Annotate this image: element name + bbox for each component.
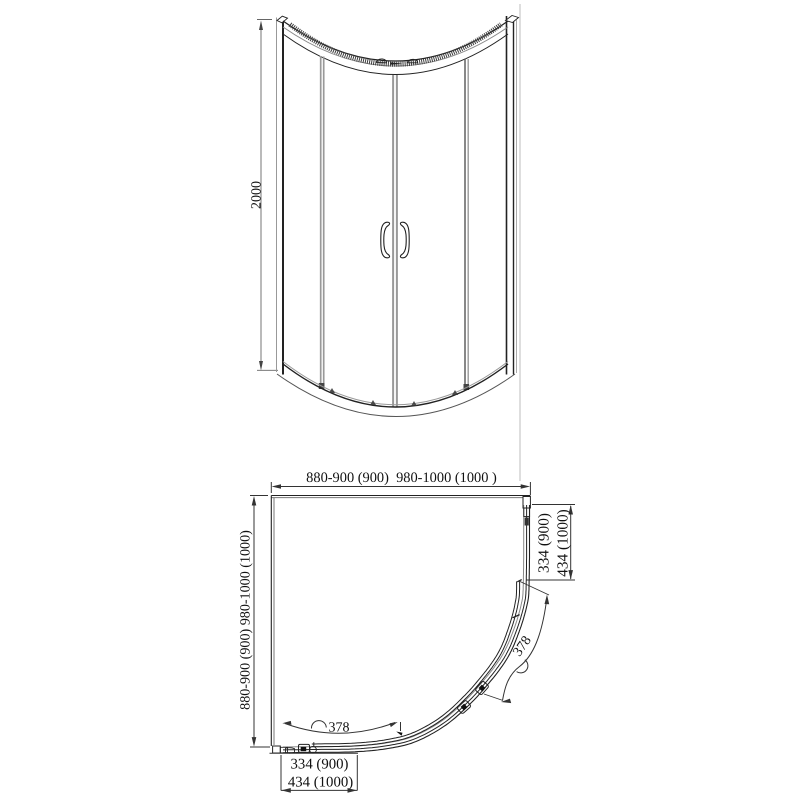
svg-text:880-900 (900) 980-1000 (1000: 880-900 (900) 980-1000 (1000 ) bbox=[306, 470, 497, 486]
svg-text:334 (900): 334 (900) bbox=[291, 757, 349, 773]
svg-text:880-900 (900) 980-1000 (1000): 880-900 (900) 980-1000 (1000) bbox=[238, 530, 254, 710]
svg-text:378: 378 bbox=[329, 721, 350, 736]
svg-text:334 (900): 334 (900) bbox=[536, 513, 553, 573]
svg-text:434 (1000): 434 (1000) bbox=[288, 775, 353, 791]
svg-text:2000: 2000 bbox=[249, 181, 264, 209]
svg-text:434 (1000): 434 (1000) bbox=[555, 509, 572, 577]
